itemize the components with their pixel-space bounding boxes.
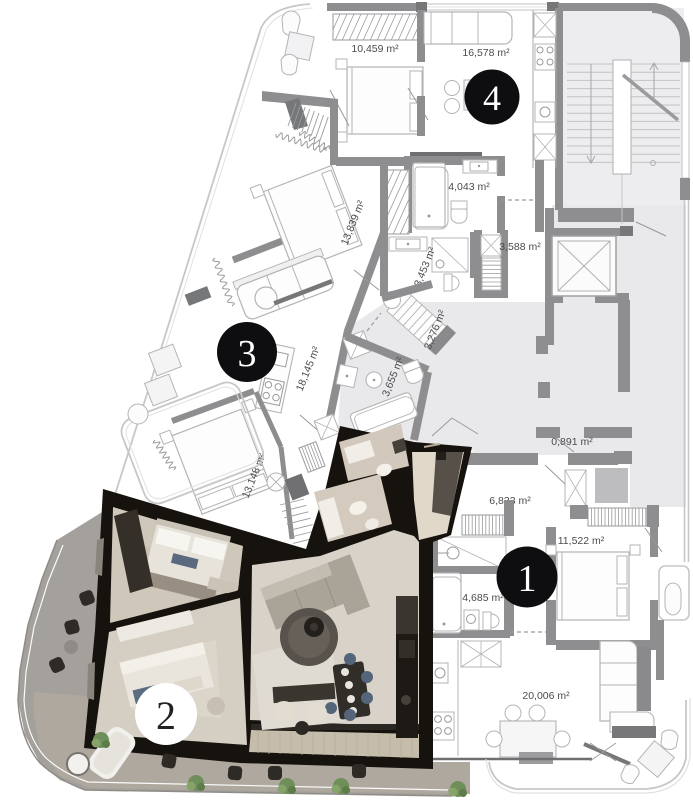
svg-text:20,006 m²: 20,006 m² xyxy=(522,690,570,702)
svg-text:0,891 m²: 0,891 m² xyxy=(551,436,593,448)
svg-text:1: 1 xyxy=(518,558,537,600)
svg-text:10,459 m²: 10,459 m² xyxy=(351,43,399,55)
svg-text:11,522 m²: 11,522 m² xyxy=(558,535,605,547)
svg-text:3: 3 xyxy=(238,333,257,375)
svg-text:16,578 m²: 16,578 m² xyxy=(462,47,510,59)
svg-text:4,043 m²: 4,043 m² xyxy=(448,181,490,193)
svg-text:4,685 m²: 4,685 m² xyxy=(462,592,504,604)
svg-text:3,588 m²: 3,588 m² xyxy=(499,241,541,253)
svg-text:4: 4 xyxy=(483,78,501,118)
svg-text:2: 2 xyxy=(156,693,176,738)
